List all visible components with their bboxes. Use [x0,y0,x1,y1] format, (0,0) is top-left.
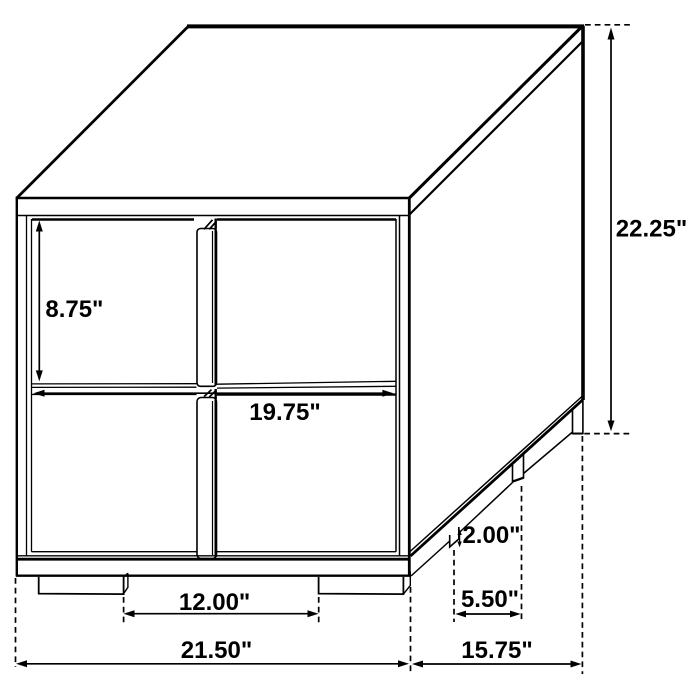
svg-text:12.00": 12.00" [179,589,250,616]
svg-text:19.75": 19.75" [249,399,320,426]
svg-text:15.75": 15.75" [461,637,532,664]
svg-text:22.25": 22.25" [616,216,687,243]
svg-text:2.00": 2.00" [462,522,520,549]
svg-text:21.50": 21.50" [181,637,252,664]
svg-text:5.50": 5.50" [461,586,519,613]
svg-text:8.75": 8.75" [45,296,103,323]
